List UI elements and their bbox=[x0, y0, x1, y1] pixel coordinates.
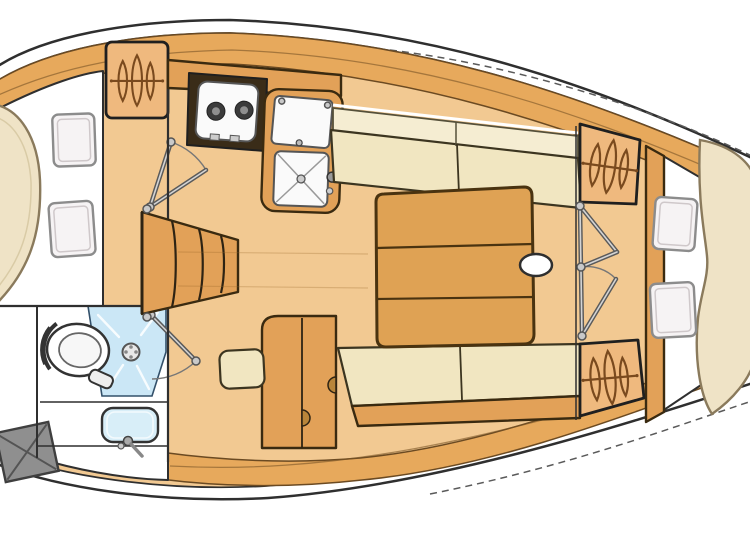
v-berth-mattress bbox=[697, 140, 750, 414]
door-hinge bbox=[143, 313, 151, 321]
pillow bbox=[652, 197, 698, 252]
door-hinge bbox=[143, 205, 151, 213]
pillow bbox=[52, 113, 96, 166]
storage-hatch bbox=[0, 422, 59, 482]
door-hinge bbox=[192, 357, 200, 365]
mast-post bbox=[520, 254, 552, 276]
pillow bbox=[48, 201, 96, 258]
door-hinge bbox=[577, 263, 585, 271]
salon-table bbox=[376, 187, 534, 347]
stove bbox=[187, 73, 267, 151]
settee-port bbox=[338, 344, 580, 426]
door-hinge bbox=[576, 202, 584, 210]
yacht-floor-plan bbox=[0, 0, 750, 540]
door-hinge bbox=[578, 332, 586, 340]
seat-cushion bbox=[219, 349, 265, 389]
shower-drain bbox=[123, 344, 140, 361]
pillow bbox=[650, 282, 697, 338]
salon-cabinet bbox=[262, 316, 336, 448]
icebox bbox=[271, 96, 333, 149]
aft-hanging-locker bbox=[106, 42, 168, 118]
floor-plan-canvas bbox=[0, 0, 750, 540]
